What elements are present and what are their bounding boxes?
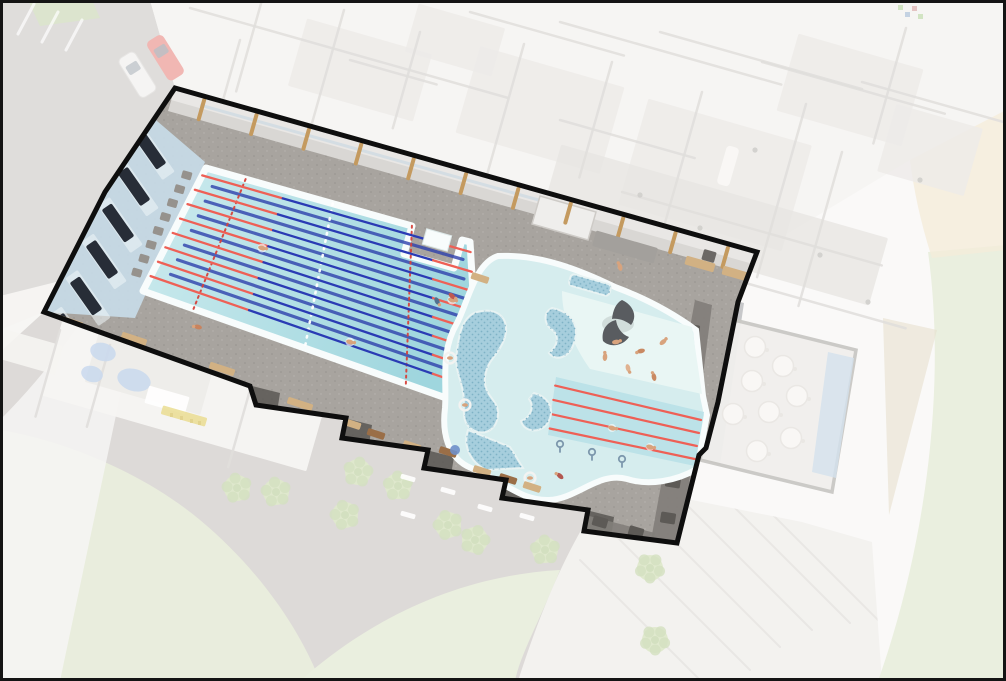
aerial-render-canvas [0,0,1006,681]
site-plan-render [0,0,1006,681]
